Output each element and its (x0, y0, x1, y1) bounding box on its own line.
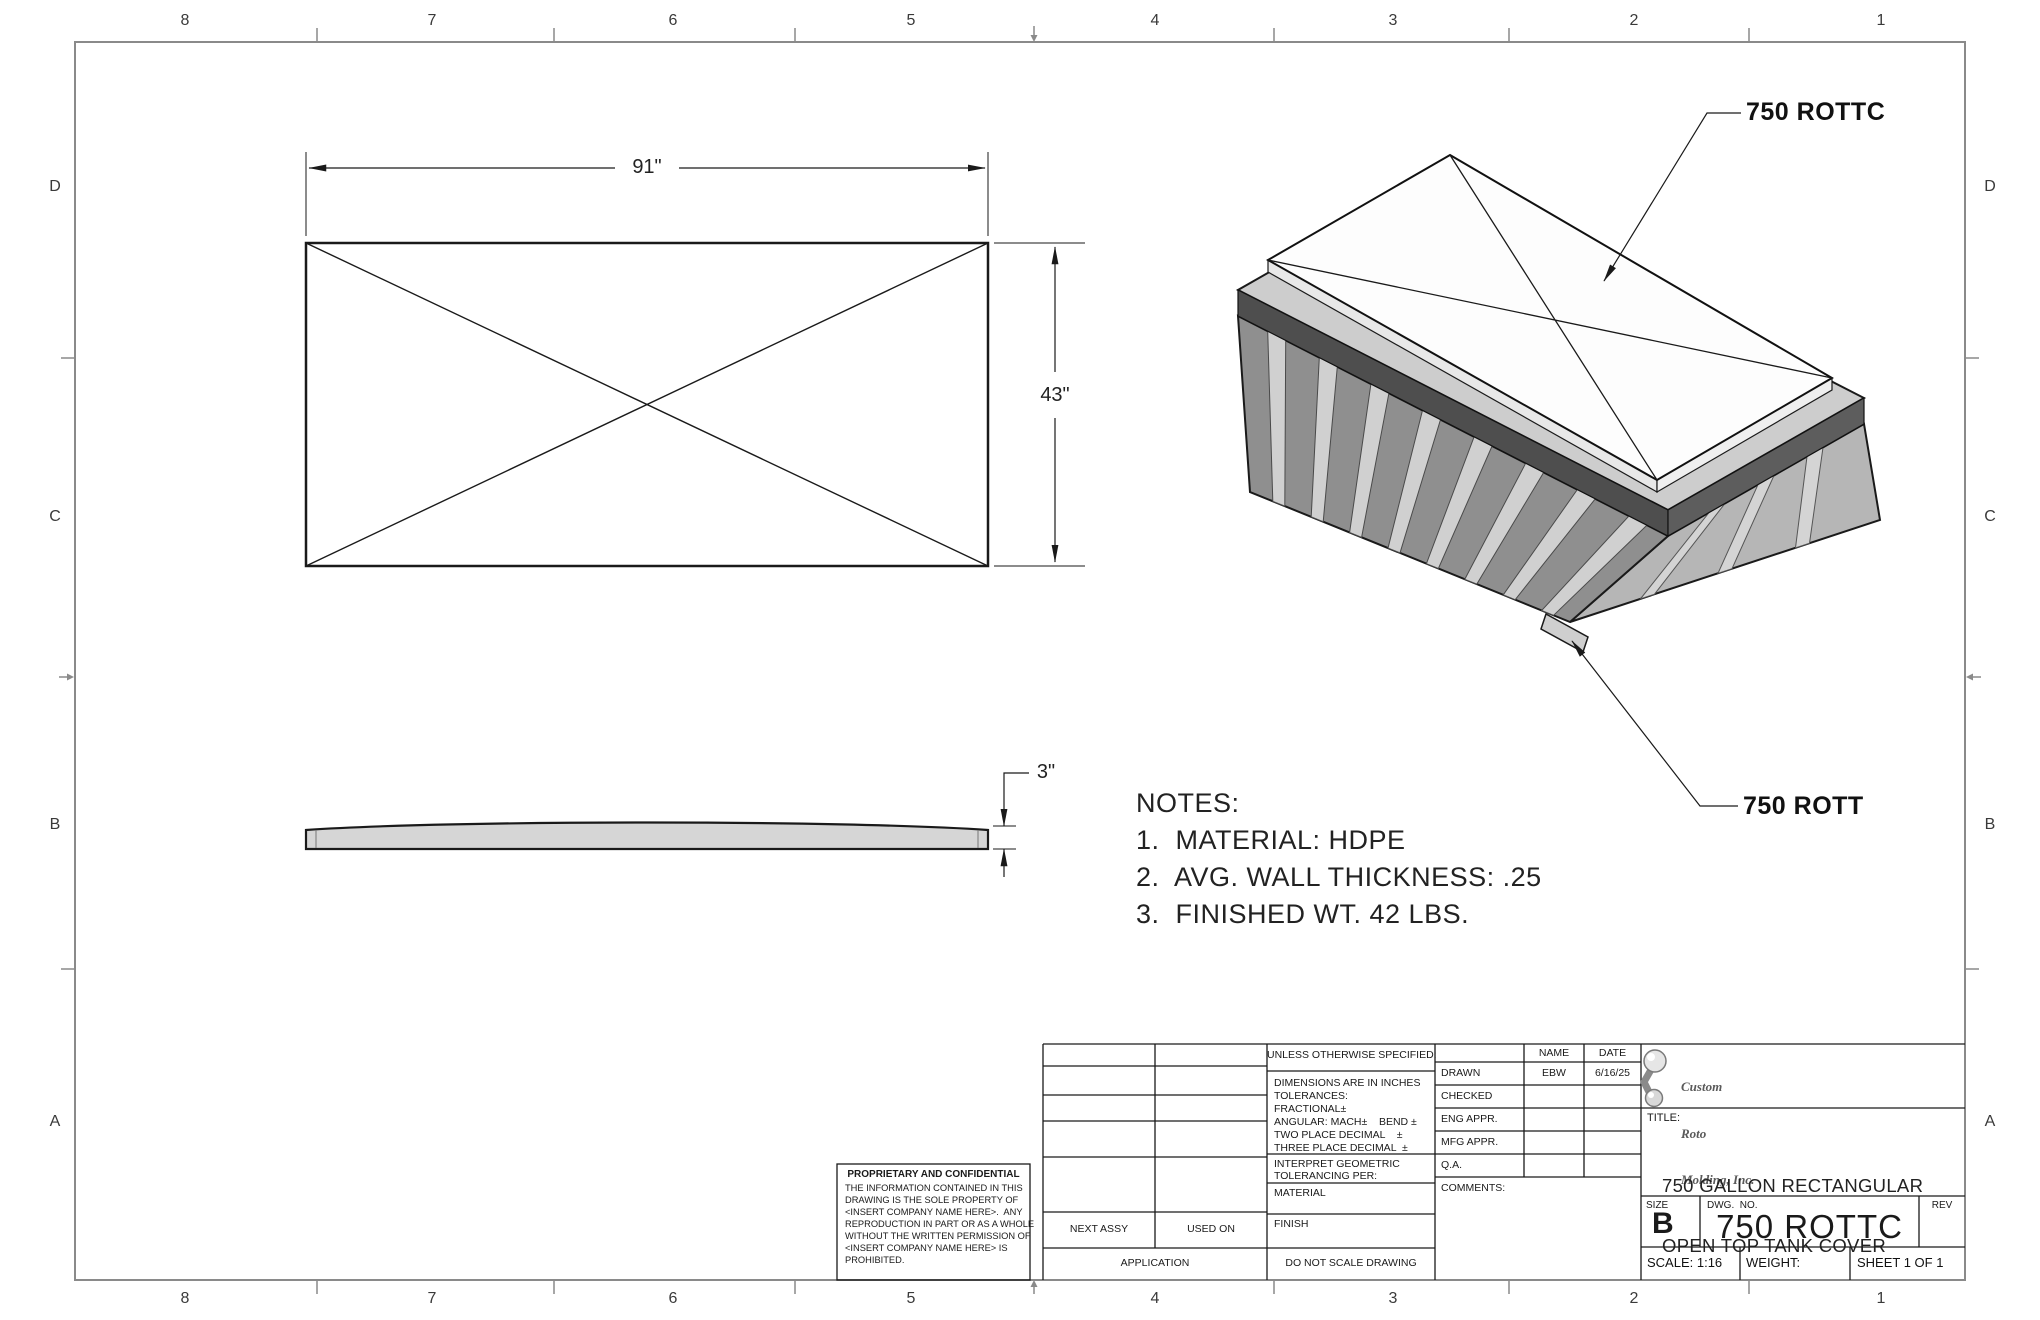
zone-bottom-6: 6 (658, 1290, 688, 1308)
weight-label: WEIGHT: (1746, 1256, 1800, 1270)
note-item: 1. MATERIAL: HDPE (1136, 825, 1542, 862)
zone-left-d: D (42, 178, 68, 196)
used-on-label: USED ON (1155, 1224, 1267, 1236)
company-logo-icon (1644, 1050, 1666, 1107)
size-value: B (1652, 1207, 1674, 1240)
proprietary-line: <INSERT COMPANY NAME HERE>. ANY (845, 1207, 1023, 1219)
zone-bottom-2: 2 (1619, 1290, 1649, 1308)
rev-label: REV (1919, 1200, 1965, 1211)
zone-left-b: B (42, 816, 68, 834)
zone-top-8: 8 (170, 12, 200, 30)
zone-left-c: C (42, 508, 68, 526)
zone-bottom-1: 1 (1866, 1290, 1896, 1308)
proprietary-heading: PROPRIETARY AND CONFIDENTIAL (837, 1169, 1030, 1180)
interpret-geometric-line: TOLERANCING PER: (1274, 1171, 1377, 1183)
material-label: MATERIAL (1274, 1188, 1326, 1200)
note-item: 2. AVG. WALL THICKNESS: .25 (1136, 862, 1542, 899)
top-view (306, 152, 1085, 566)
notes-block: NOTES: 1. MATERIAL: HDPE 2. AVG. WALL TH… (1136, 788, 1542, 936)
approval-row-label: ENG APPR. (1441, 1114, 1498, 1126)
zone-right-a: A (1977, 1113, 2003, 1131)
label-tank: 750 ROTT (1743, 793, 1864, 821)
interpret-geometric-line: INTERPRET GEOMETRIC (1274, 1159, 1400, 1171)
zone-top-2: 2 (1619, 12, 1649, 30)
zone-top-6: 6 (658, 12, 688, 30)
comments-label: COMMENTS: (1441, 1183, 1505, 1195)
zone-top-4: 4 (1140, 12, 1170, 30)
name-header: NAME (1524, 1048, 1584, 1060)
finish-label: FINISH (1274, 1219, 1308, 1231)
note-item: 3. FINISHED WT. 42 LBS. (1136, 899, 1542, 936)
proprietary-line: THE INFORMATION CONTAINED IN THIS (845, 1183, 1023, 1195)
proprietary-line: DRAWING IS THE SOLE PROPERTY OF (845, 1195, 1018, 1207)
sheet-label: SHEET 1 OF 1 (1857, 1256, 1943, 1270)
proprietary-line: WITHOUT THE WRITTEN PERMISSION OF (845, 1231, 1031, 1243)
leader-tank (1572, 641, 1738, 806)
uos-line: TOLERANCES: (1274, 1091, 1348, 1103)
iso-view (1238, 113, 1880, 806)
title-line: 750 GALLON RECTANGULAR (1662, 1176, 1923, 1196)
dim-height: 43" (1032, 384, 1078, 406)
approval-row-label: Q.A. (1441, 1160, 1462, 1172)
do-not-scale-label: DO NOT SCALE DRAWING (1267, 1258, 1435, 1270)
uos-line: THREE PLACE DECIMAL ± (1274, 1143, 1408, 1155)
uos-line: FRACTIONAL± (1274, 1104, 1346, 1116)
notes-heading: NOTES: (1136, 788, 1542, 825)
approval-row-label: DRAWN (1441, 1068, 1480, 1080)
approval-row-date: 6/16/25 (1584, 1068, 1641, 1080)
zone-bottom-8: 8 (170, 1290, 200, 1308)
date-header: DATE (1584, 1048, 1641, 1060)
zone-top-7: 7 (417, 12, 447, 30)
proprietary-line: REPRODUCTION IN PART OR AS A WHOLE (845, 1219, 1034, 1231)
next-assy-label: NEXT ASSY (1043, 1224, 1155, 1236)
side-view (306, 773, 1031, 877)
label-cover: 750 ROTTC (1746, 99, 1885, 127)
zone-right-c: C (1977, 508, 2003, 526)
zone-right-b: B (1977, 816, 2003, 834)
zone-top-3: 3 (1378, 12, 1408, 30)
uos-line: TWO PLACE DECIMAL ± (1274, 1130, 1402, 1142)
zone-bottom-4: 4 (1140, 1290, 1170, 1308)
zone-bottom-3: 3 (1378, 1290, 1408, 1308)
drawing-sheet: 8 7 6 5 4 3 2 1 8 7 6 5 4 3 2 1 D C B A … (0, 0, 2040, 1320)
proprietary-line: <INSERT COMPANY NAME HERE> IS (845, 1243, 1008, 1255)
uos-heading: UNLESS OTHERWISE SPECIFIED: (1267, 1050, 1435, 1062)
uos-line: DIMENSIONS ARE IN INCHES (1274, 1078, 1420, 1090)
logo-line: Custom (1681, 1079, 1754, 1095)
application-label: APPLICATION (1043, 1258, 1267, 1270)
zone-bottom-7: 7 (417, 1290, 447, 1308)
approval-row-label: MFG APPR. (1441, 1137, 1498, 1149)
zone-bottom-5: 5 (896, 1290, 926, 1308)
scale-value: SCALE: 1:16 (1647, 1256, 1722, 1270)
uos-line: ANGULAR: MACH± BEND ± (1274, 1117, 1417, 1129)
dwg-no-value: 750 ROTTC (1700, 1209, 1919, 1245)
zone-left-a: A (42, 1113, 68, 1131)
title-label: TITLE: (1647, 1112, 1680, 1124)
zone-right-d: D (1977, 178, 2003, 196)
proprietary-line: PROHIBITED. (845, 1255, 904, 1267)
dim-width: 91" (615, 156, 679, 178)
approval-row-label: CHECKED (1441, 1091, 1492, 1103)
zone-top-1: 1 (1866, 12, 1896, 30)
dim-thickness: 3" (1029, 761, 1063, 783)
approval-row-name: EBW (1524, 1068, 1584, 1080)
zone-top-5: 5 (896, 12, 926, 30)
